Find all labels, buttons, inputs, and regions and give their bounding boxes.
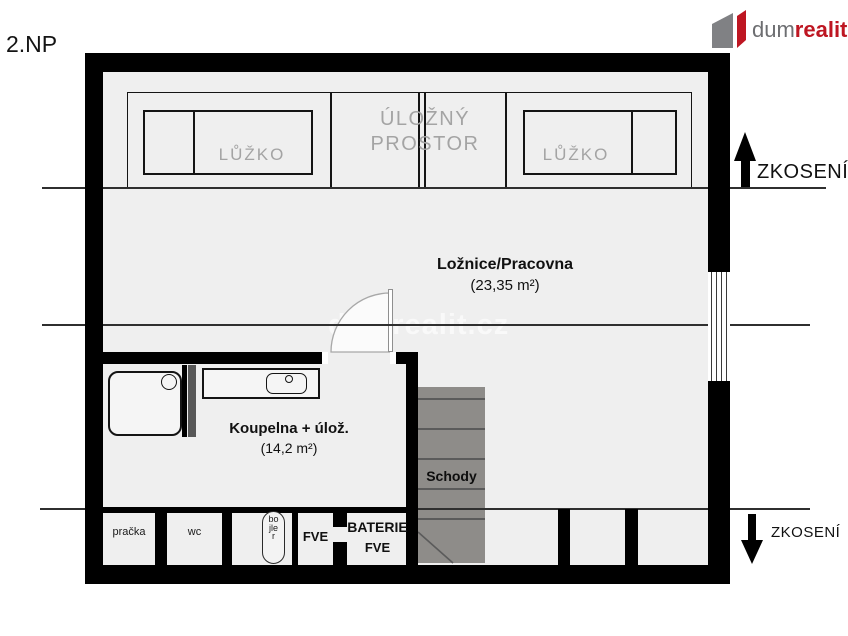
compartment-divider (558, 509, 570, 565)
bathroom-name: Koupelna + úlož. (189, 420, 389, 437)
floor-plan-page: dumrealit.cz LŮŽKO LŮŽKO ÚLOŽNÝ PROSTOR … (0, 0, 848, 636)
storage-label-line1: ÚLOŽNÝ (345, 107, 505, 132)
logo-house-icon (708, 6, 750, 52)
utility-row-wall (103, 507, 418, 513)
slope-label-bottom: ZKOSENÍ (771, 524, 840, 541)
slope-down-arrow-icon (738, 512, 768, 568)
window (708, 272, 730, 381)
slope-up-arrow-icon (730, 130, 760, 190)
boiler-label: bojler (269, 515, 279, 541)
logo-text-dum: dum (752, 17, 795, 42)
logo-text-realit: realit.cz (795, 17, 848, 42)
storage-space-label: ÚLOŽNÝ PROSTOR (345, 107, 505, 157)
boiler: bojler (262, 511, 285, 564)
dimension-line-middle (42, 324, 810, 326)
fve-label: FVE (298, 529, 333, 544)
door-frame (322, 352, 328, 364)
logo-wordmark: dumrealit.cz (752, 17, 848, 43)
wc-label: wc (167, 526, 222, 538)
floor-title: 2.NP (6, 31, 57, 58)
bathroom-wall (103, 352, 328, 364)
battery-fve-label-line1: BATERIE (347, 519, 408, 535)
outer-wall-top (85, 53, 730, 72)
window-pane-line (721, 272, 722, 381)
compartment-divider (155, 513, 167, 565)
washer-label: pračka (103, 526, 155, 538)
bedroom-name: Ložnice/Pracovna (405, 256, 605, 274)
stairs-diagonal (418, 532, 453, 563)
storage-label-line2: PROSTOR (345, 132, 505, 157)
compartment-divider (625, 509, 638, 565)
door-frame (390, 352, 396, 364)
slope-label-top: ZKOSENÍ (757, 161, 848, 184)
compartment-divider (222, 513, 232, 565)
door-swing-arc (331, 293, 390, 352)
window-pane-line (726, 272, 727, 381)
outer-wall-bottom (85, 565, 730, 584)
bed-right-label: LŮŽKO (521, 145, 631, 165)
outer-wall-left (85, 53, 103, 584)
bed-left-label: LŮŽKO (197, 145, 307, 165)
battery-fve-label-line2: FVE (347, 540, 408, 555)
stairs-label: Schody (418, 468, 485, 484)
bedroom-area: (23,35 m²) (405, 277, 605, 294)
door-leaf (388, 289, 393, 352)
window-pane-line (711, 272, 712, 381)
compartment-passage (333, 527, 347, 542)
window-pane-line (716, 272, 717, 381)
bathroom-area: (14,2 m²) (189, 440, 389, 456)
